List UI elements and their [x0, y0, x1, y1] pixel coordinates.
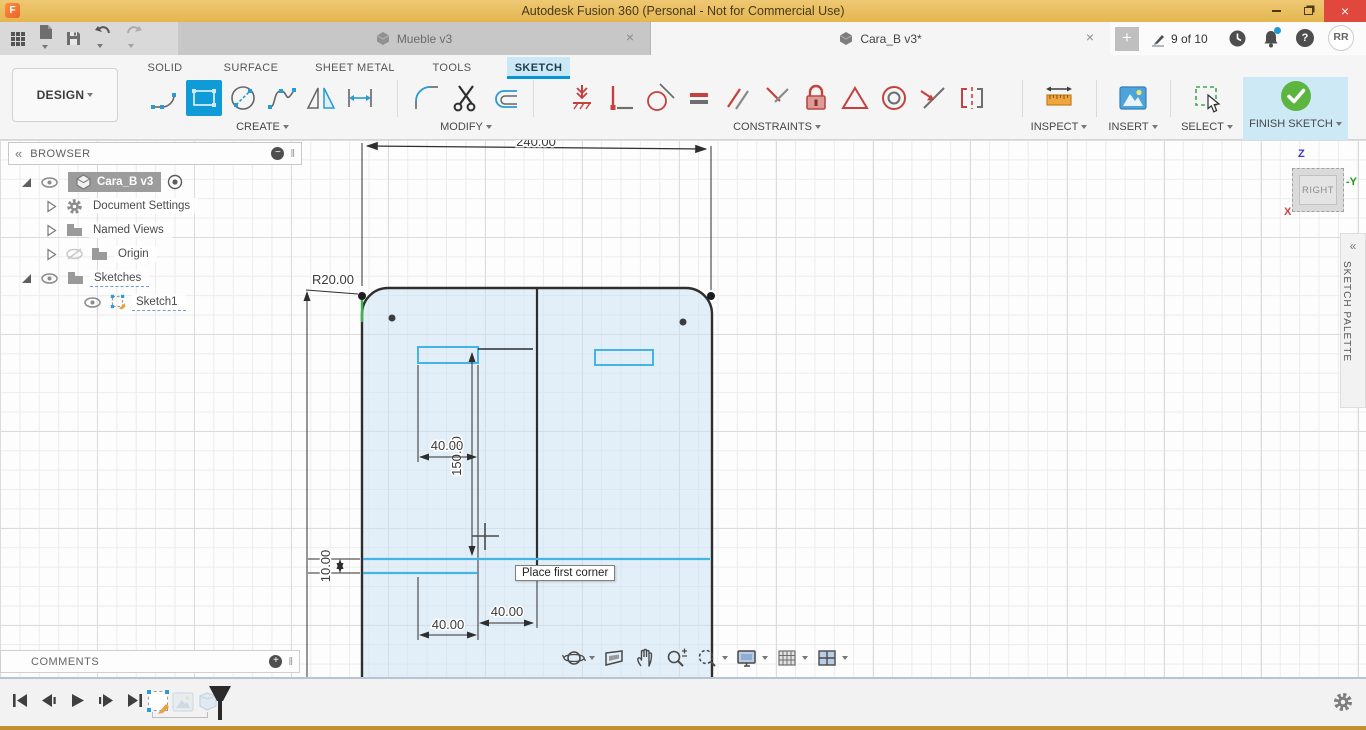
horizontal-vertical-constraint-button[interactable] — [603, 80, 639, 116]
select-dropdown[interactable]: SELECT — [1172, 121, 1242, 133]
job-status-pencil-icon — [1150, 31, 1166, 47]
save-button[interactable] — [66, 31, 81, 46]
viewports-caret-icon — [842, 656, 848, 660]
equal-constraint-button[interactable] — [681, 80, 717, 116]
sketch-canvas[interactable]: 240.00 R20.00 150.00 40.00 — [0, 140, 1366, 677]
expander-open-icon[interactable] — [22, 274, 31, 283]
restore-icon — [1304, 7, 1313, 15]
folder-icon — [91, 247, 108, 261]
grid-caret-icon — [802, 656, 808, 660]
file-menu-button[interactable] — [39, 24, 53, 54]
measure-tool-button[interactable] — [1041, 80, 1077, 116]
node-label: Named Views — [89, 222, 172, 238]
look-at-button[interactable] — [602, 646, 626, 670]
create-caret-icon — [283, 125, 289, 129]
browser-row-sketch1[interactable]: Sketch1 — [8, 290, 302, 314]
help-button[interactable]: ? — [1296, 29, 1314, 47]
expander-closed-icon[interactable] — [46, 200, 57, 213]
tab-surface[interactable]: SURFACE — [216, 57, 286, 79]
tab-sketch[interactable]: SKETCH — [507, 57, 570, 79]
go-to-end-button[interactable] — [127, 693, 143, 708]
browser-resize-grip[interactable]: ‖ — [290, 148, 295, 160]
palette-title: SKETCH PALETTE — [1341, 261, 1352, 362]
mirror-tool-button[interactable] — [303, 80, 339, 116]
close-button[interactable]: × — [1324, 0, 1366, 22]
fix-lock-constraint-button[interactable] — [798, 80, 834, 116]
canvas-nav-bar — [562, 646, 848, 670]
tab-sheet-metal[interactable]: SHEET METAL — [312, 57, 398, 79]
tab-close-icon[interactable]: × — [622, 30, 638, 46]
tangent-constraint-button[interactable] — [642, 80, 678, 116]
visibility-eye-icon[interactable] — [84, 297, 101, 308]
midpoint-constraint-button[interactable] — [915, 80, 951, 116]
notification-dot — [1274, 27, 1281, 34]
pan-button[interactable] — [633, 646, 657, 670]
visibility-eye-icon[interactable] — [41, 273, 58, 284]
timeline-position-marker[interactable] — [206, 685, 234, 721]
user-avatar[interactable]: RR — [1328, 25, 1354, 51]
axis-y-label: -Y — [1346, 176, 1357, 188]
grid-snaps-button[interactable] — [775, 646, 808, 670]
inspect-caret-icon — [1081, 125, 1087, 129]
orbit-button[interactable] — [562, 646, 595, 670]
finish-sketch-button[interactable]: FINISH SKETCH — [1243, 77, 1348, 140]
ribbon-separator — [1170, 80, 1171, 117]
browser-row-named-views[interactable]: Named Views — [8, 218, 302, 242]
comments-title: COMMENTS — [31, 656, 269, 668]
line-tool-button[interactable] — [147, 80, 183, 116]
expander-closed-icon[interactable] — [46, 248, 57, 261]
tab-close-icon[interactable]: × — [1082, 30, 1098, 46]
parallel-constraint-button[interactable] — [720, 80, 756, 116]
view-cube-body[interactable]: RIGHT — [1292, 168, 1344, 212]
ribbon-separator — [1022, 80, 1023, 117]
display-settings-button[interactable] — [735, 646, 768, 670]
bottom-accent-strip — [0, 726, 1366, 730]
insert-group: INSERT — [1098, 78, 1168, 133]
new-tab-button[interactable]: + — [1115, 27, 1139, 51]
expander-closed-icon[interactable] — [46, 224, 57, 237]
folder-icon — [66, 223, 83, 237]
timeline-sketch1-item[interactable] — [148, 691, 168, 711]
fit-button[interactable] — [695, 646, 728, 670]
job-status-label: 9 of 10 — [1171, 32, 1208, 46]
timeline-canvas-item[interactable] — [172, 692, 194, 712]
trim-tool-button[interactable] — [448, 80, 484, 116]
comments-resize-grip[interactable]: ‖ — [288, 656, 293, 668]
ground-constraint-button[interactable] — [564, 80, 600, 116]
timeline-bar — [0, 677, 1366, 726]
spline-tool-button[interactable] — [264, 80, 300, 116]
browser-row-document-settings[interactable]: Document Settings — [8, 194, 302, 218]
play-button[interactable] — [70, 693, 85, 708]
timeline-playback-controls — [12, 693, 143, 708]
tab-mueble-v3[interactable]: Mueble v3 × — [178, 22, 651, 55]
browser-root-node: Cara_B v3 — [68, 172, 161, 192]
node-label: Sketch1 — [132, 294, 186, 311]
constraints-group: CONSTRAINTS — [538, 78, 1016, 133]
restore-button[interactable] — [1292, 0, 1324, 22]
concentric-constraint-button[interactable] — [876, 80, 912, 116]
redo-button[interactable] — [125, 25, 143, 53]
ribbon-separator — [533, 80, 534, 117]
fillet-tool-button[interactable] — [409, 80, 445, 116]
modify-caret-icon — [486, 125, 492, 129]
tab-label: Mueble v3 — [397, 32, 452, 46]
insert-caret-icon — [1152, 125, 1158, 129]
create-group: CREATE — [130, 78, 395, 133]
document-tab-bar: Mueble v3 × Cara_B v3* × + 9 of 10 ? RR — [0, 22, 1366, 55]
workspace-selector[interactable]: DESIGN — [12, 68, 118, 122]
minimize-button[interactable] — [1260, 0, 1292, 22]
visibility-off-eye-icon[interactable] — [66, 248, 83, 260]
step-forward-button[interactable] — [98, 693, 114, 708]
node-label: Origin — [114, 246, 157, 262]
dim-slot-gap[interactable]: 40.00 — [491, 604, 524, 619]
dim-fillet-radius[interactable]: R20.00 — [312, 272, 354, 287]
fusion-360-window: F Autodesk Fusion 360 (Personal - Not fo… — [0, 0, 1366, 730]
tab-label: Cara_B v3* — [860, 32, 921, 46]
perpendicular-constraint-button[interactable] — [759, 80, 795, 116]
workspace-label: DESIGN — [37, 88, 85, 102]
tab-tools[interactable]: TOOLS — [424, 57, 480, 79]
browser-row-sketches[interactable]: Sketches — [8, 266, 302, 290]
undo-caret-icon — [97, 44, 103, 48]
title-bar: F Autodesk Fusion 360 (Personal - Not fo… — [0, 0, 1366, 22]
settings-gear-icon[interactable] — [1332, 691, 1354, 713]
activate-radio-icon[interactable] — [167, 174, 183, 190]
expander-open-icon[interactable] — [22, 178, 31, 187]
gear-icon — [66, 198, 83, 215]
inspect-dropdown[interactable]: INSPECT — [1024, 121, 1094, 133]
browser-row-origin[interactable]: Origin — [8, 242, 302, 266]
add-comment-icon[interactable]: + — [269, 655, 282, 668]
create-dropdown[interactable]: CREATE — [130, 121, 395, 133]
document-cube-icon — [839, 31, 853, 46]
select-caret-icon — [1227, 125, 1233, 129]
view-cube-face[interactable]: RIGHT — [1299, 175, 1337, 205]
node-label: Document Settings — [89, 198, 198, 214]
window-title: Autodesk Fusion 360 (Personal - Not for … — [0, 0, 1366, 22]
select-group: SELECT — [1172, 78, 1242, 133]
dim-total-width[interactable]: 240.00 — [516, 140, 556, 149]
document-cube-icon — [376, 31, 390, 46]
ribbon-separator — [1096, 80, 1097, 117]
zoom-button[interactable] — [664, 646, 688, 670]
tab-cara-b-v3[interactable]: Cara_B v3* × — [651, 22, 1110, 55]
browser-minimize-icon[interactable]: − — [271, 147, 284, 160]
offset-tool-button[interactable] — [487, 80, 523, 116]
cursor-tooltip: Place first corner — [515, 565, 615, 581]
quick-access-toolbar — [0, 22, 178, 55]
symmetry-constraint-button[interactable] — [954, 80, 990, 116]
component-cube-icon — [76, 174, 91, 190]
node-label: Sketches — [90, 270, 149, 287]
sketch-palette-panel[interactable]: « SKETCH PALETTE — [1340, 233, 1366, 408]
folder-icon — [67, 271, 84, 285]
go-to-start-button[interactable] — [12, 693, 28, 708]
data-panel-button[interactable] — [10, 31, 26, 47]
comments-bar[interactable]: COMMENTS + ‖ — [0, 650, 300, 673]
dim-slot-left[interactable]: 40.00 — [432, 617, 465, 632]
orbit-caret-icon — [589, 656, 595, 660]
display-caret-icon — [762, 656, 768, 660]
insert-dropdown[interactable]: INSERT — [1098, 121, 1168, 133]
root-node-label: Cara_B v3 — [97, 176, 153, 188]
undo-button[interactable] — [94, 25, 112, 53]
palette-expand-icon[interactable]: « — [1341, 239, 1365, 253]
redo-caret-icon — [128, 44, 134, 48]
minimize-icon — [1272, 10, 1281, 12]
browser-collapse-icon[interactable]: « — [15, 146, 22, 161]
constraints-dropdown[interactable]: CONSTRAINTS — [538, 121, 1016, 133]
fit-caret-icon — [722, 656, 728, 660]
browser-row-root[interactable]: Cara_B v3 — [8, 170, 302, 194]
finish-check-icon — [1279, 79, 1313, 113]
circle-tool-button[interactable] — [225, 80, 261, 116]
polygon-constraint-button[interactable] — [837, 80, 873, 116]
axis-x-label: X — [1284, 206, 1291, 218]
browser-panel: « BROWSER − ‖ Cara_B v3 — [8, 142, 302, 314]
file-menu-caret-icon — [42, 45, 48, 49]
axis-z-label: Z — [1298, 148, 1305, 160]
notification-bell-button[interactable] — [1262, 29, 1280, 51]
workspace-caret-icon — [87, 93, 93, 97]
ribbon-separator — [397, 80, 398, 117]
modify-dropdown[interactable]: MODIFY — [400, 121, 532, 133]
insert-image-button[interactable] — [1115, 80, 1151, 116]
sketch-dimension-button[interactable] — [342, 80, 378, 116]
step-back-button[interactable] — [41, 693, 57, 708]
visibility-eye-icon[interactable] — [41, 177, 58, 188]
dim-slot-height[interactable]: 10.00 — [318, 550, 333, 583]
modify-group: MODIFY — [400, 78, 532, 133]
rectangle-tool-button[interactable] — [186, 80, 222, 116]
view-cube[interactable]: Z RIGHT -Y X — [1282, 148, 1362, 224]
finish-sketch-label: FINISH SKETCH — [1243, 118, 1348, 130]
finish-caret-icon — [1336, 122, 1342, 126]
tab-solid[interactable]: SOLID — [138, 57, 192, 79]
ribbon-toolbar: DESIGN SOLID SURFACE SHEET METAL TOOLS S… — [0, 55, 1366, 140]
tabbar-right-area: + 9 of 10 ? RR — [1110, 22, 1366, 55]
sketch-icon — [110, 294, 126, 310]
browser-title: BROWSER — [30, 148, 271, 160]
dim-rect-width[interactable]: 40.00 — [431, 438, 464, 453]
select-tool-button[interactable] — [1189, 80, 1225, 116]
history-clock-button[interactable] — [1228, 29, 1247, 51]
inspect-group: INSPECT — [1024, 78, 1094, 133]
browser-header[interactable]: « BROWSER − ‖ — [8, 142, 302, 165]
constraints-caret-icon — [815, 125, 821, 129]
viewports-button[interactable] — [815, 646, 848, 670]
job-status-button[interactable]: 9 of 10 — [1150, 22, 1208, 55]
timeline-group-bracket — [152, 712, 208, 718]
